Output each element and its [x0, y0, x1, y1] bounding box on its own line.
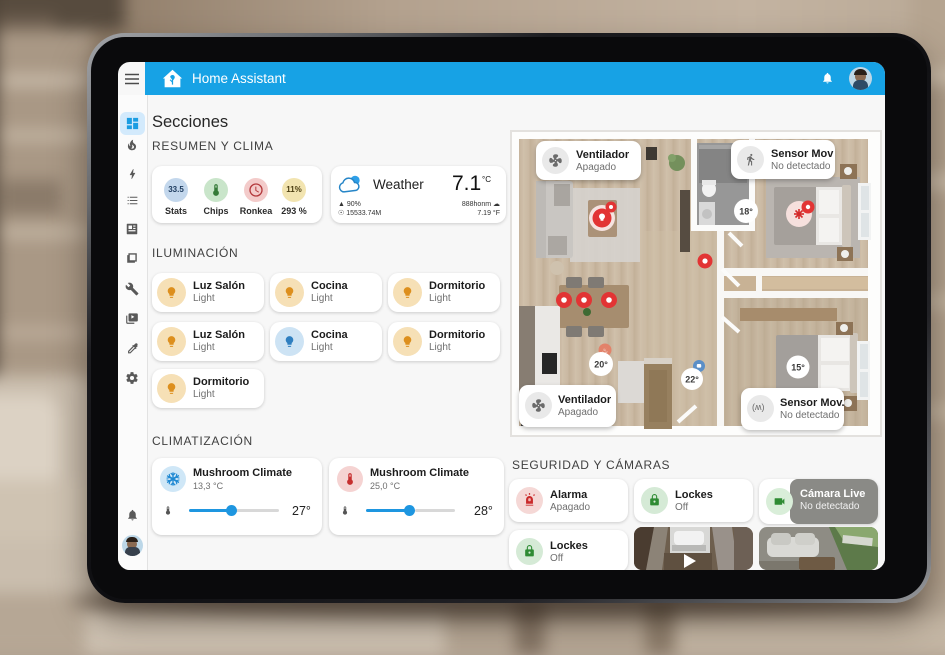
svg-text:18°: 18° — [739, 207, 753, 217]
svg-text:22°: 22° — [685, 375, 699, 385]
svg-text:15°: 15° — [791, 363, 805, 373]
svg-text:20°: 20° — [594, 360, 608, 370]
